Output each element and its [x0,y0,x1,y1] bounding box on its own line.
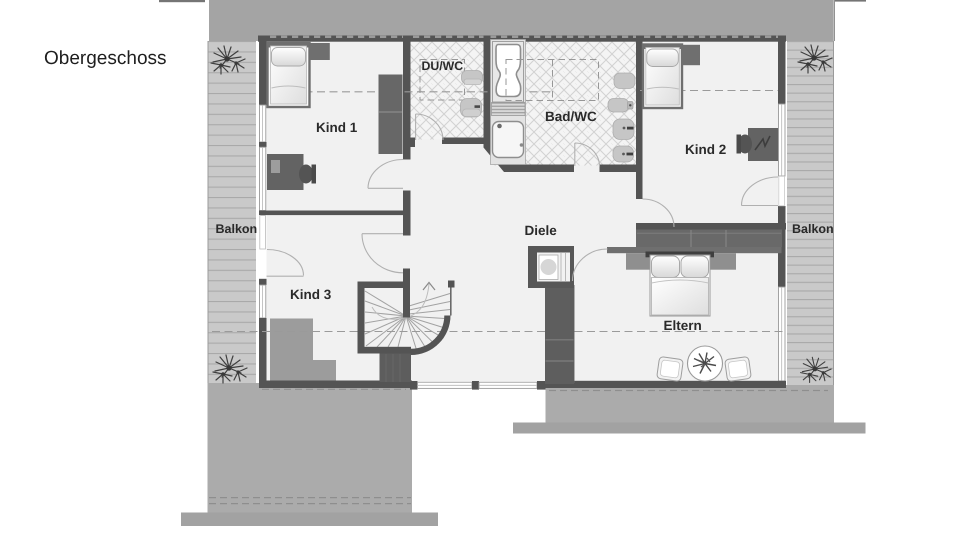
svg-text:Kind 2: Kind 2 [685,142,726,157]
svg-text:DU/WC: DU/WC [422,59,464,73]
svg-text:Diele: Diele [525,223,558,238]
svg-text:Kind 1: Kind 1 [316,120,358,135]
svg-text:Kind 3: Kind 3 [290,287,332,302]
svg-text:Balkon: Balkon [792,222,834,236]
svg-text:Balkon: Balkon [216,222,258,236]
svg-text:Eltern: Eltern [664,318,702,333]
svg-text:Obergeschoss: Obergeschoss [44,48,167,69]
svg-text:Bad/WC: Bad/WC [545,109,597,124]
